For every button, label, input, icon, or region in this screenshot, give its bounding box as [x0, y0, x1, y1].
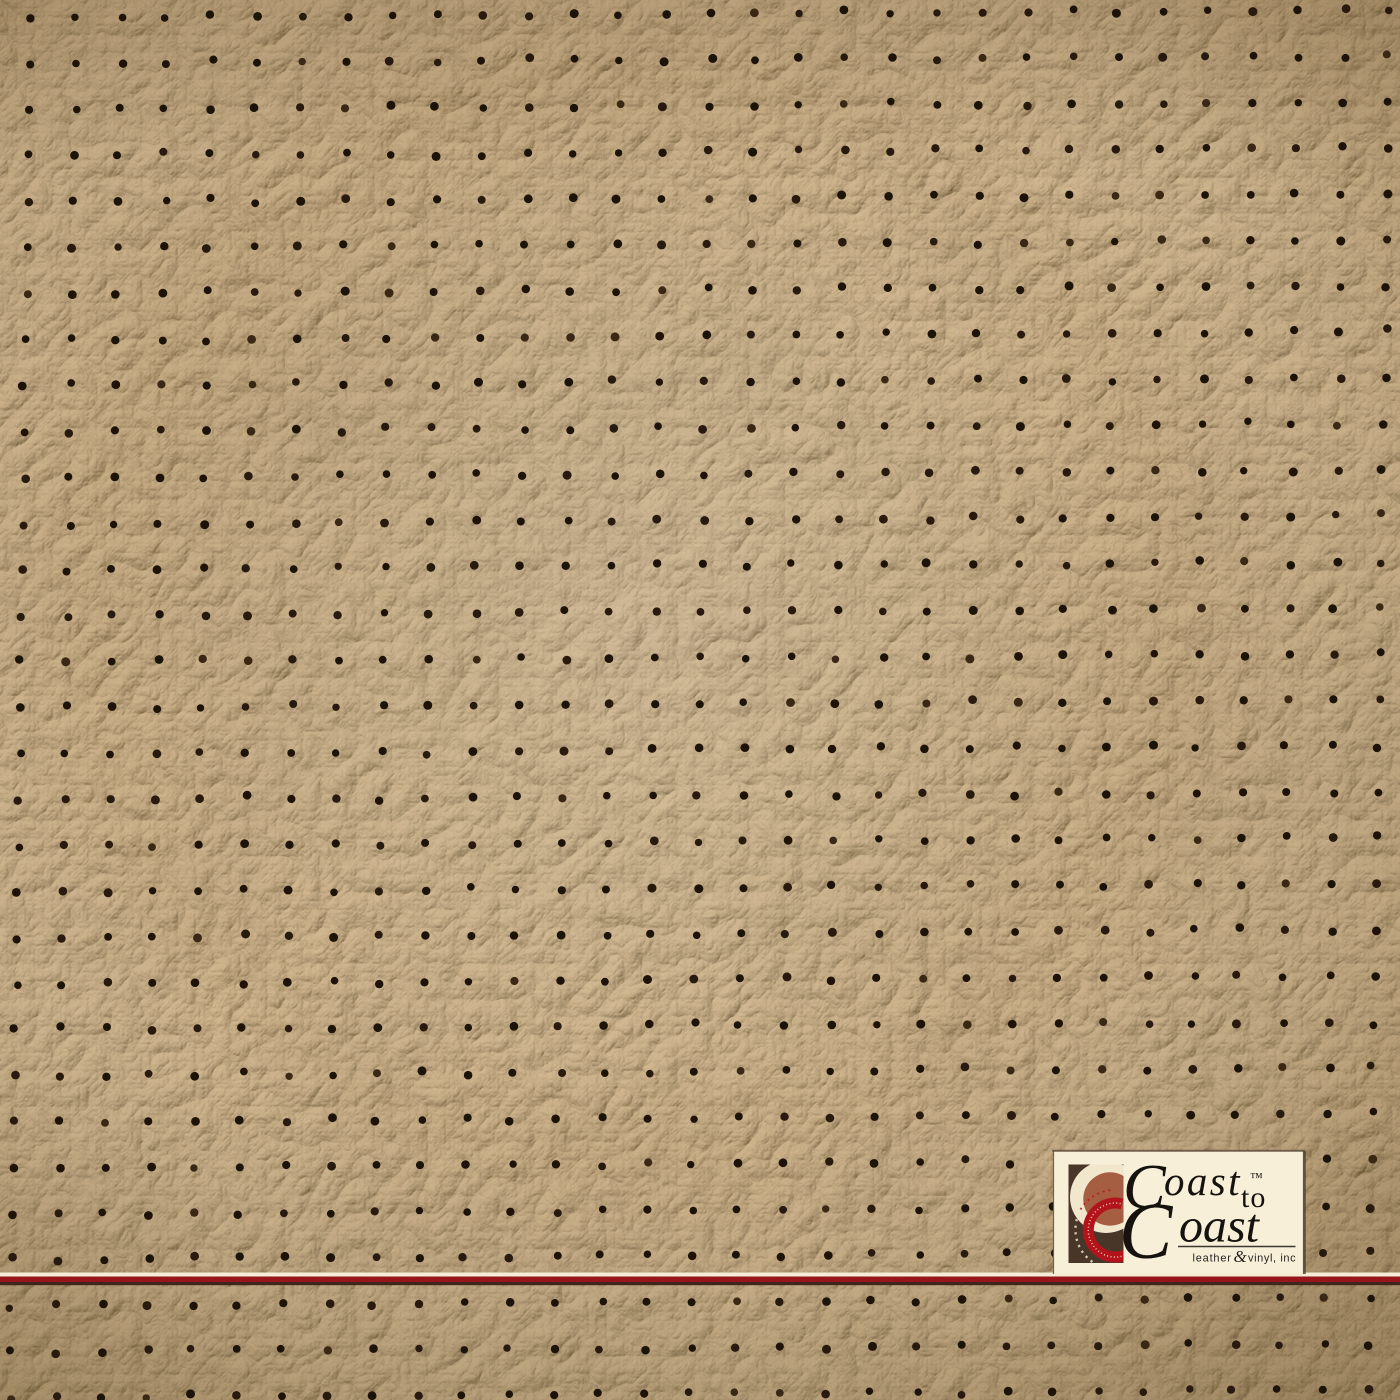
svg-text:&: & [1234, 1247, 1248, 1266]
svg-text:oast: oast [1164, 1158, 1242, 1204]
svg-text:leather: leather [1193, 1253, 1232, 1265]
svg-text:oast: oast [1179, 1200, 1261, 1253]
svg-text:vinyl, inc: vinyl, inc [1248, 1253, 1296, 1265]
svg-text:C: C [1119, 1188, 1174, 1276]
